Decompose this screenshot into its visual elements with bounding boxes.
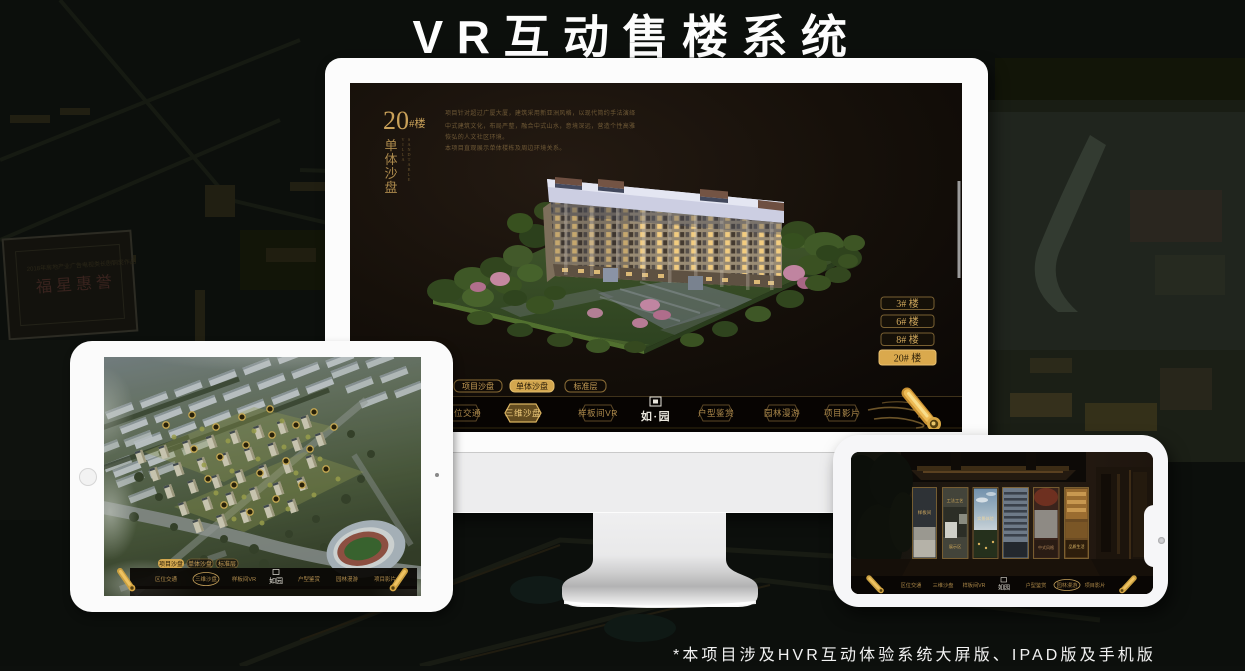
svg-text:工法工艺: 工法工艺 [947, 497, 964, 504]
svg-text:三维沙盘: 三维沙盘 [195, 575, 218, 583]
svg-text:实景体验: 实景体验 [977, 515, 995, 522]
svg-text:项目针对超过广厦大厦，建筑采用新亚洲风格，以现代简约手法演绎: 项目针对超过广厦大厦，建筑采用新亚洲风格，以现代简约手法演绎 [445, 109, 636, 117]
svg-text:品质生活: 品质生活 [1069, 543, 1085, 549]
svg-text:项目影片: 项目影片 [374, 575, 396, 583]
svg-text:中式建筑文化，布局严整，融合中式山水，意境深远，营造个性高雅: 中式建筑文化，布局严整，融合中式山水，意境深远，营造个性高雅 [445, 122, 636, 130]
svg-text:本项目直观展示单体楼栋及周边环境关系。: 本项目直观展示单体楼栋及周边环境关系。 [445, 144, 566, 152]
svg-text:20# 楼: 20# 楼 [894, 352, 922, 365]
svg-text:E: E [408, 177, 411, 182]
svg-text:三维沙盘: 三维沙盘 [505, 408, 541, 418]
svg-text:园林漫游: 园林漫游 [764, 408, 800, 418]
svg-text:标准层: 标准层 [574, 381, 598, 391]
svg-text:如园: 如园 [269, 576, 283, 585]
svg-text:3# 楼: 3# 楼 [896, 297, 919, 310]
svg-text:园林漫游: 园林漫游 [336, 575, 359, 583]
svg-text:8# 楼: 8# 楼 [896, 333, 919, 346]
svg-text:6# 楼: 6# 楼 [896, 315, 919, 328]
svg-text:A: A [401, 157, 404, 162]
svg-text:项目沙盘: 项目沙盘 [159, 560, 183, 568]
svg-text:户型鉴赏: 户型鉴赏 [1026, 581, 1047, 589]
svg-text:沙: 沙 [384, 166, 397, 181]
svg-text:区位交通: 区位交通 [155, 575, 178, 583]
svg-text:样板间VR: 样板间VR [232, 575, 256, 583]
svg-text:单体沙盘: 单体沙盘 [188, 560, 212, 568]
svg-text:单: 单 [384, 138, 397, 153]
svg-text:如园: 如园 [998, 584, 1010, 592]
svg-text:项目沙盘: 项目沙盘 [462, 381, 494, 391]
svg-text:户型鉴赏: 户型鉴赏 [298, 575, 321, 583]
svg-text:项目影片: 项目影片 [824, 408, 860, 418]
svg-text:中式风格: 中式风格 [1038, 544, 1054, 550]
svg-text:三维沙盘: 三维沙盘 [933, 581, 954, 589]
svg-text:盘: 盘 [384, 180, 397, 195]
svg-text:单体沙盘: 单体沙盘 [516, 381, 548, 391]
svg-text:区位交通: 区位交通 [901, 581, 923, 589]
svg-text:如·园: 如·园 [641, 409, 671, 423]
svg-text:恢弘的人文社区环境。: 恢弘的人文社区环境。 [445, 133, 509, 141]
svg-text:标准层: 标准层 [218, 560, 236, 568]
svg-text:样板间: 样板间 [918, 509, 932, 516]
svg-text:样板间VR: 样板间VR [578, 408, 618, 418]
svg-text:项目影片: 项目影片 [1085, 581, 1106, 589]
svg-text:户型鉴赏: 户型鉴赏 [698, 408, 734, 418]
svg-text:样板间VR: 样板间VR [963, 581, 986, 589]
svg-text:体: 体 [384, 152, 397, 167]
svg-text:园林漫游: 园林漫游 [1057, 581, 1078, 589]
